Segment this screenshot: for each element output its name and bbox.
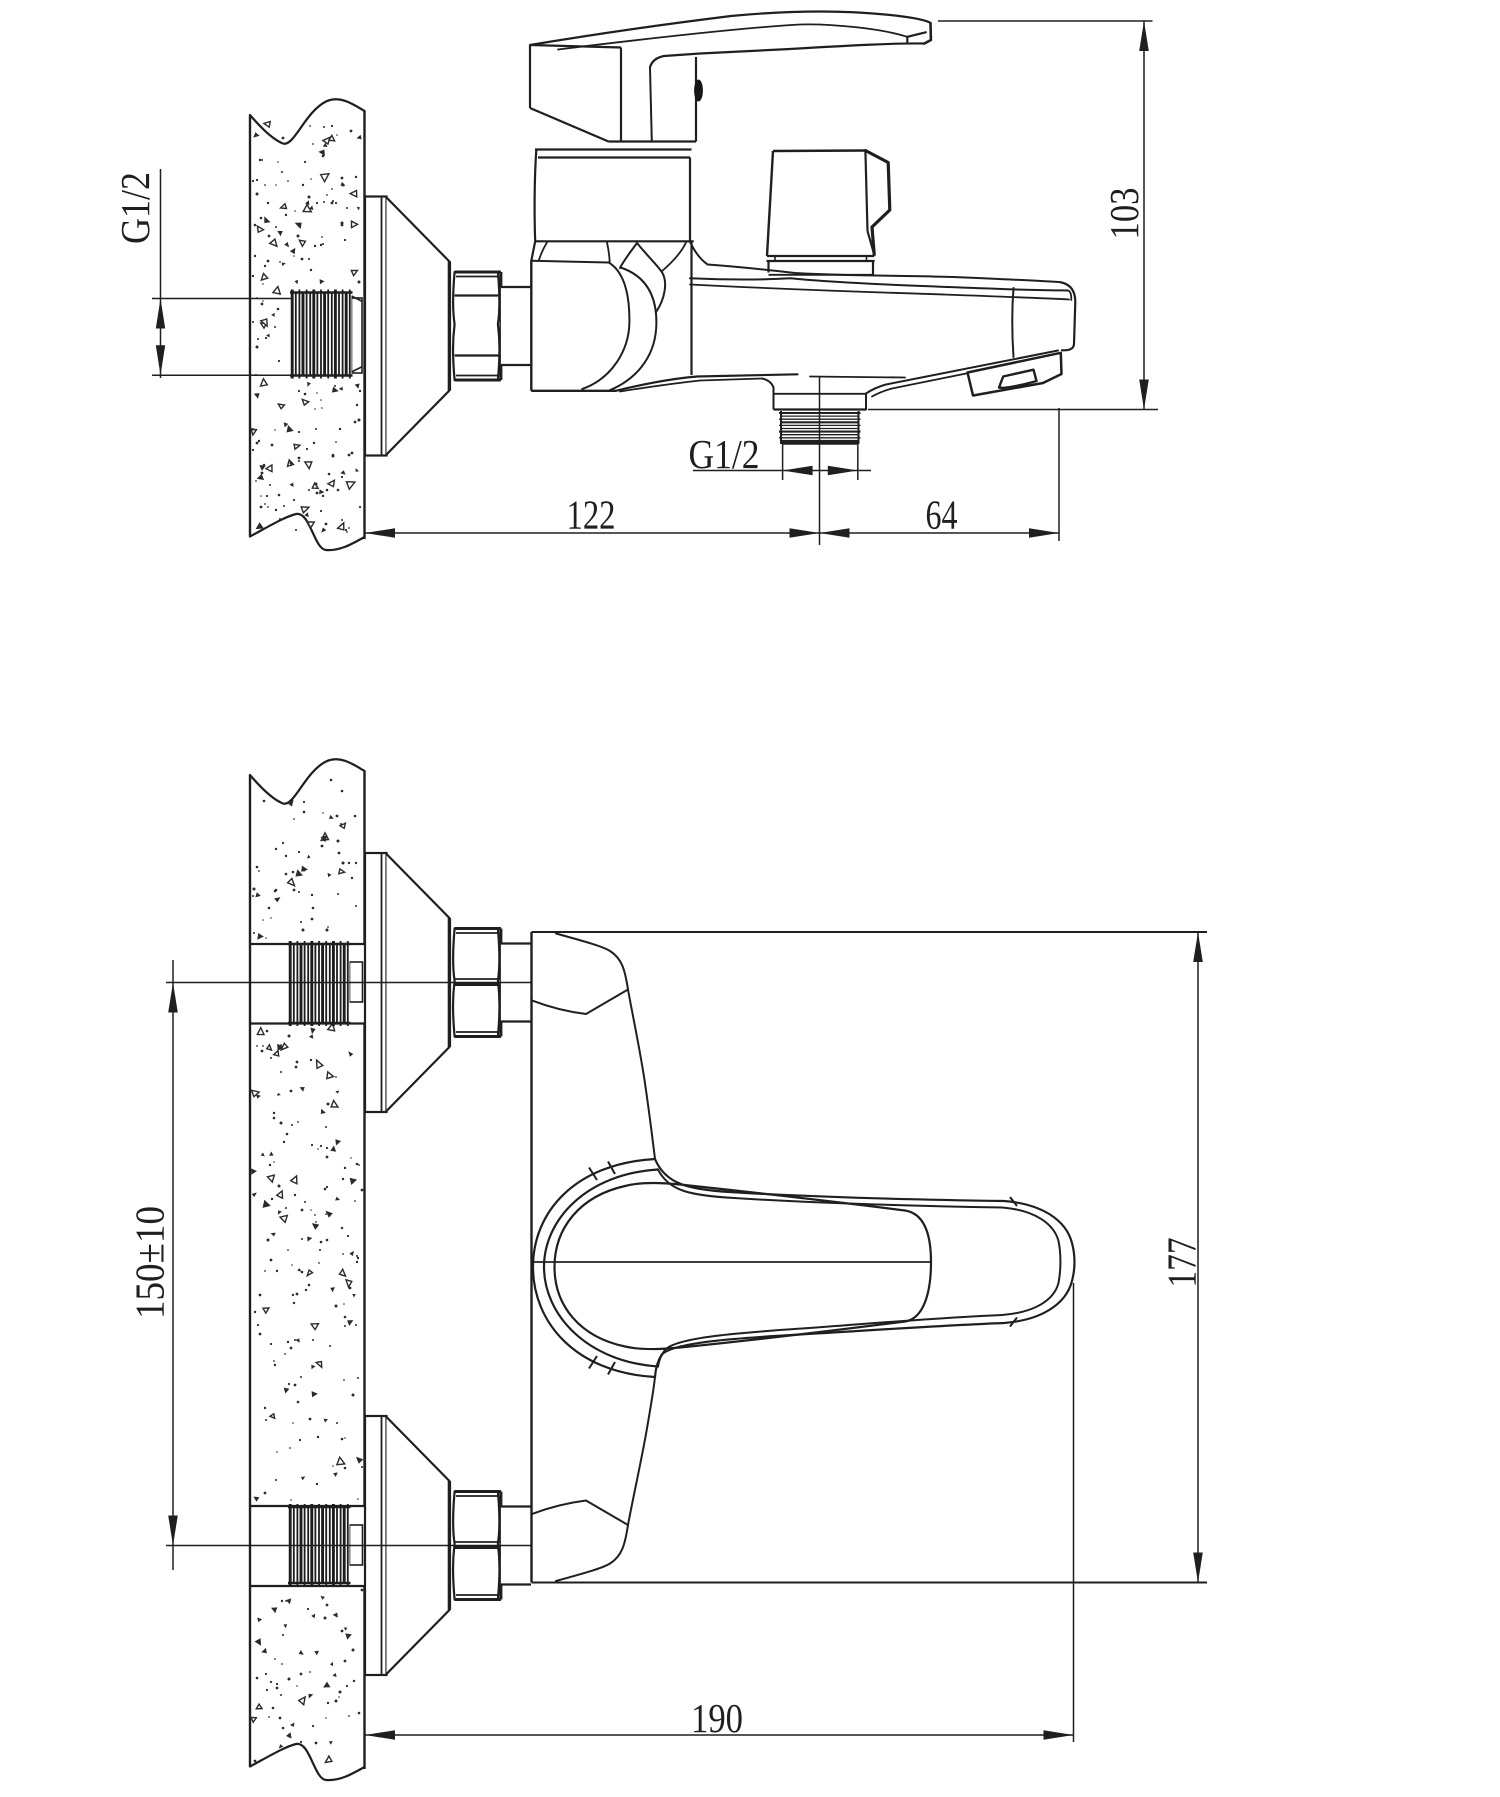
svg-text:G1/2: G1/2 (112, 172, 158, 244)
svg-text:150±10: 150±10 (127, 1206, 173, 1319)
svg-text:122: 122 (567, 492, 616, 538)
svg-text:103: 103 (1101, 188, 1147, 240)
svg-text:190: 190 (691, 1695, 743, 1741)
svg-text:64: 64 (926, 492, 958, 538)
